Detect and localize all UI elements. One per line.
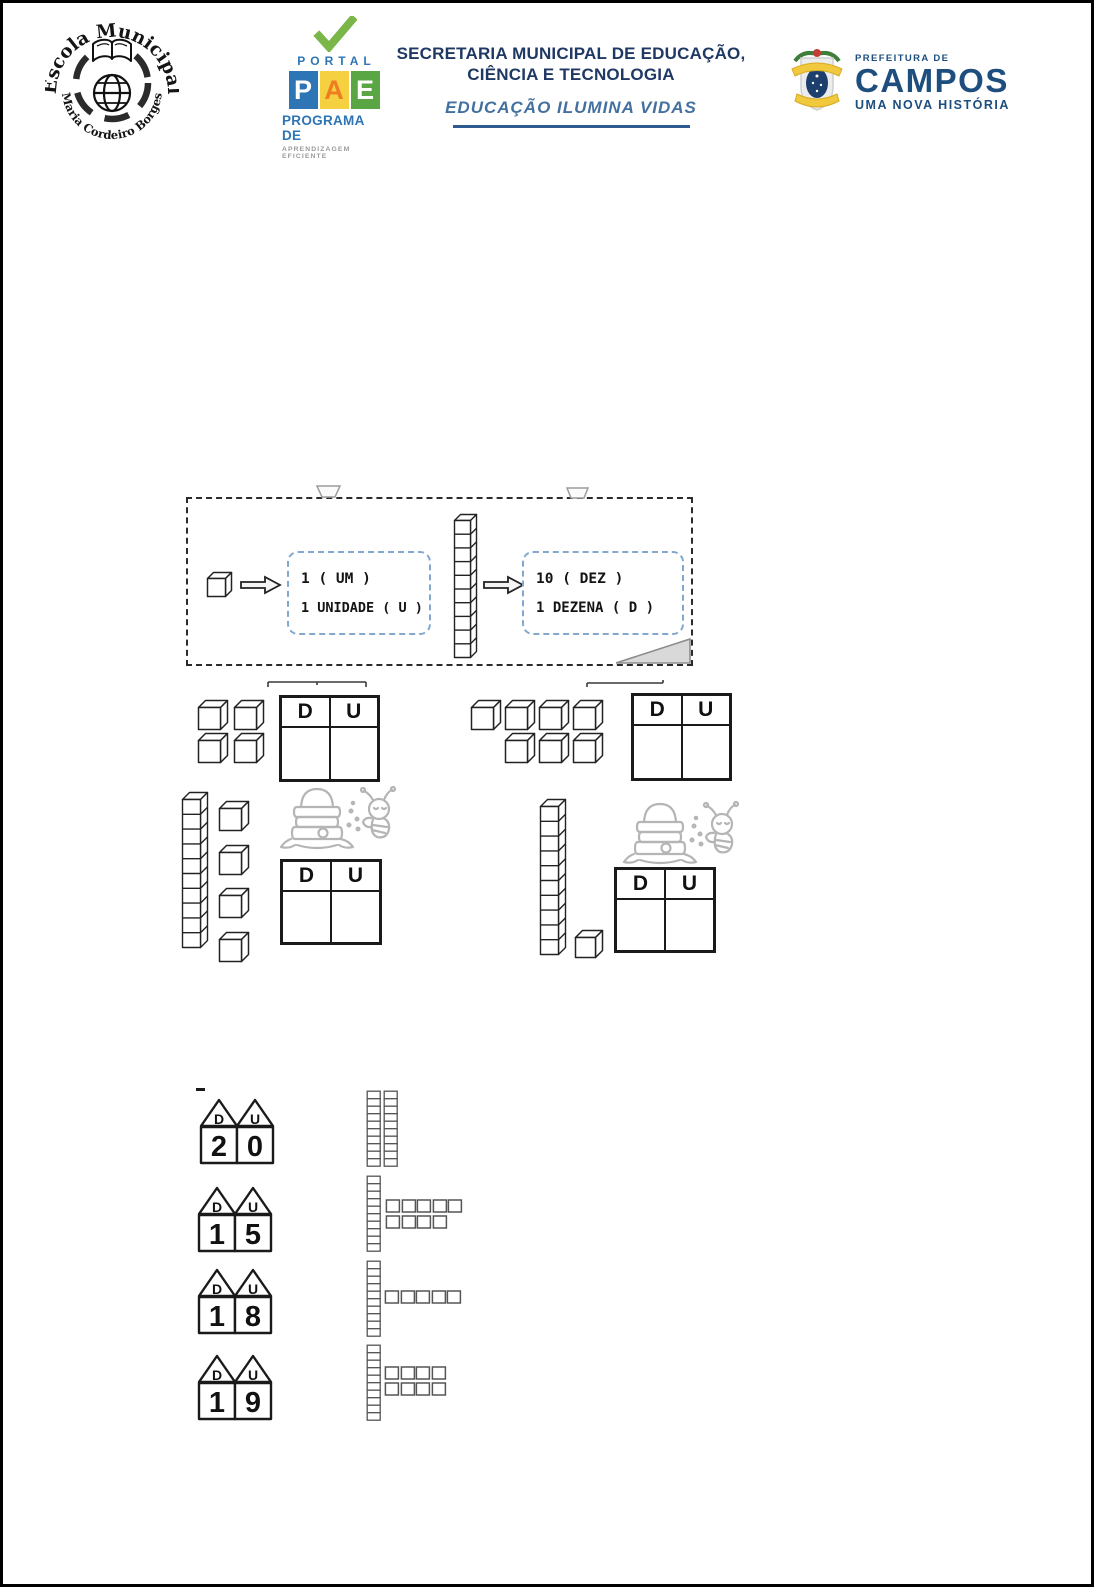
ten-line2: 1 DEZENA ( D )	[536, 600, 670, 616]
du-units-answer-cell[interactable]	[329, 728, 378, 779]
answer-line	[267, 679, 369, 689]
tape-mark	[316, 485, 342, 499]
answer-line	[586, 679, 666, 689]
arrow-right-icon	[240, 575, 282, 595]
roof-units-label: U	[248, 1199, 258, 1215]
du-tens-answer-cell[interactable]	[282, 728, 329, 779]
number-house-20[interactable]: D U 2 0	[198, 1096, 276, 1166]
pae-letter-blocks: P A E	[289, 71, 380, 109]
pae-portal-label: PORTAL	[297, 54, 375, 68]
ten-definition-box: 10 ( DEZ ) 1 DEZENA ( D )	[522, 551, 684, 635]
du-header-units: U	[329, 698, 378, 726]
tens-digit: 1	[209, 1301, 225, 1333]
du-header-units: U	[681, 696, 730, 724]
unit-line2: 1 UNIDADE ( U )	[301, 600, 417, 616]
du-header-units: U	[664, 870, 713, 898]
roof-tens-label: D	[212, 1199, 222, 1215]
number-house-18[interactable]: D U 1 8	[196, 1266, 274, 1336]
secretariat-title-line1: SECRETARIA MUNICIPAL DE EDUCAÇÃO,	[389, 43, 753, 64]
campos-logo: PREFEITURA DE CAMPOS UMA NOVA HISTÓRIA	[789, 45, 1010, 119]
du-table-2: D U	[631, 693, 732, 781]
campos-crest-icon	[789, 45, 845, 119]
pae-subtitle: APRENDIZAGEM EFICIENTE	[282, 146, 386, 160]
tens-digit: 2	[211, 1131, 227, 1163]
du-units-answer-cell[interactable]	[681, 726, 730, 778]
du-tens-answer-cell[interactable]	[617, 900, 664, 950]
roof-tens-label: D	[212, 1367, 222, 1383]
campos-name: CAMPOS	[855, 64, 1010, 98]
units-digit: 0	[247, 1131, 263, 1163]
pae-letter-p: P	[289, 71, 318, 109]
roof-units-label: U	[250, 1111, 260, 1127]
units-digit: 5	[245, 1219, 261, 1251]
tens-digit: 1	[209, 1387, 225, 1419]
number-house-15[interactable]: D U 1 5	[196, 1184, 274, 1254]
globe-icon	[94, 75, 130, 111]
pae-letter-e: E	[351, 71, 380, 109]
units-digit: 9	[245, 1387, 261, 1419]
arrow-right-icon	[483, 575, 525, 595]
units-digit: 8	[245, 1301, 261, 1333]
campos-tagline: UMA NOVA HISTÓRIA	[855, 98, 1010, 112]
number-house-19[interactable]: D U 1 9	[196, 1352, 274, 1422]
du-table-4: D U	[614, 867, 716, 953]
du-tens-answer-cell[interactable]	[283, 892, 330, 942]
du-units-answer-cell[interactable]	[664, 900, 713, 950]
tagline-underline	[453, 125, 690, 128]
secretariat-header: SECRETARIA MUNICIPAL DE EDUCAÇÃO, CIÊNCI…	[389, 43, 753, 128]
du-header-units: U	[330, 862, 379, 890]
stray-mark	[196, 1088, 205, 1091]
du-header-tens: D	[617, 870, 664, 898]
tape-mark	[566, 487, 590, 500]
roof-units-label: U	[248, 1281, 258, 1297]
du-tens-answer-cell[interactable]	[634, 726, 681, 778]
roof-tens-label: D	[214, 1111, 224, 1127]
school-logo: Escola Municipal Maria Cordeiro Borges	[45, 13, 179, 147]
du-header-tens: D	[282, 698, 329, 726]
du-header-tens: D	[634, 696, 681, 724]
pae-logo: PORTAL P A E PROGRAMA DE APRENDIZAGEM EF…	[282, 16, 386, 160]
unit-line1: 1 ( UM )	[301, 571, 417, 587]
du-table-3: D U	[280, 859, 382, 945]
du-header-tens: D	[283, 862, 330, 890]
folded-corner	[616, 636, 692, 665]
roof-tens-label: D	[212, 1281, 222, 1297]
checkmark-icon	[311, 16, 357, 52]
pae-letter-a: A	[320, 71, 349, 109]
secretariat-tagline: EDUCAÇÃO ILUMINA VIDAS	[389, 98, 753, 118]
secretariat-title-line2: CIÊNCIA E TECNOLOGIA	[389, 64, 753, 85]
legend-box: 1 ( UM ) 1 UNIDADE ( U ) 10 ( DEZ ) 1 DE…	[186, 497, 693, 666]
pae-program-label: PROGRAMA DE	[282, 113, 386, 143]
du-units-answer-cell[interactable]	[330, 892, 379, 942]
ten-line1: 10 ( DEZ )	[536, 571, 670, 587]
beehive-bee-illustration	[261, 781, 403, 865]
du-table-1: D U	[279, 695, 380, 782]
unit-definition-box: 1 ( UM ) 1 UNIDADE ( U )	[287, 551, 431, 635]
tens-digit: 1	[209, 1219, 225, 1251]
worksheet-page: Escola Municipal Maria Cordeiro Borges P…	[0, 0, 1094, 1587]
roof-units-label: U	[248, 1367, 258, 1383]
